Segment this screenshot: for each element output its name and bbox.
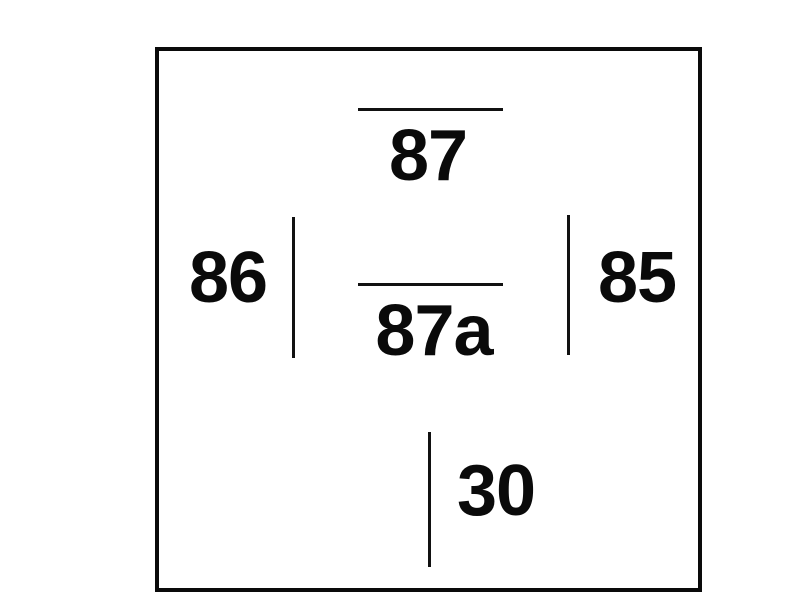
pin-87a-terminal-line — [358, 283, 503, 286]
pin-87-label: 87 — [389, 120, 467, 192]
pin-87a-label: 87a — [375, 295, 492, 367]
pin-85-label: 85 — [598, 242, 676, 314]
pin-86-terminal-line — [292, 217, 295, 358]
pin-85-terminal-line — [567, 215, 570, 355]
pin-30-label: 30 — [457, 455, 535, 527]
pin-86-label: 86 — [189, 242, 267, 314]
relay-pin-diagram: 87 87a 86 85 30 — [0, 0, 800, 615]
pin-87-terminal-line — [358, 108, 503, 111]
pin-30-terminal-line — [428, 432, 431, 567]
